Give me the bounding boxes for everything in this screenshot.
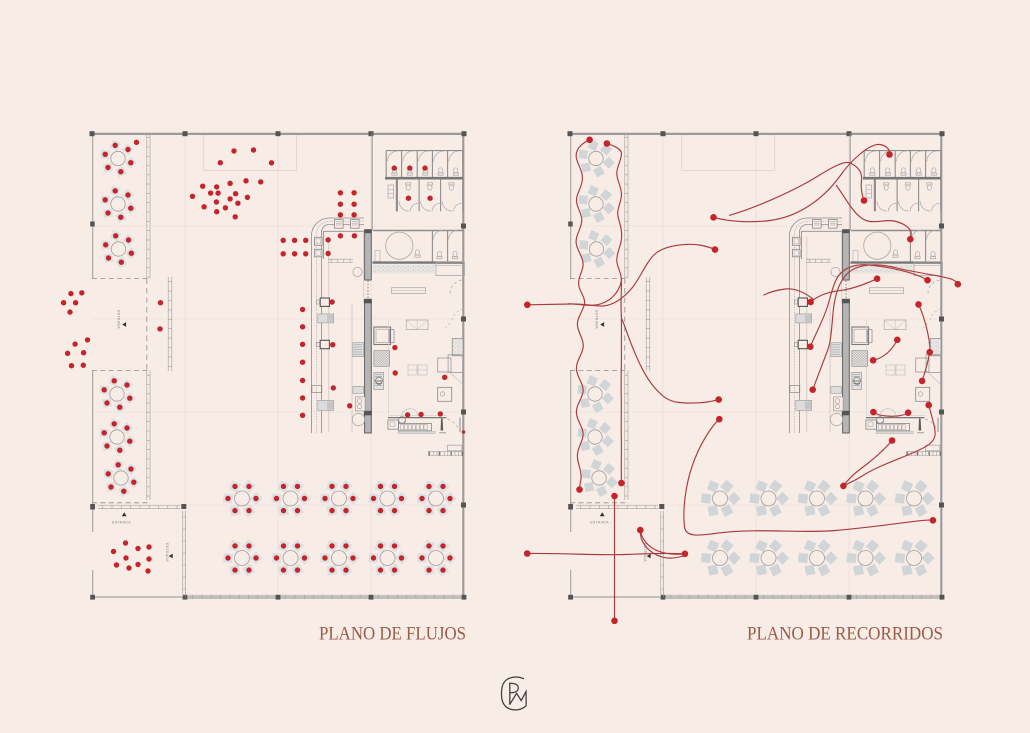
svg-text:PLANO DE RECORRIDOS: PLANO DE RECORRIDOS (747, 624, 943, 645)
svg-text:PLANO DE FLUJOS: PLANO DE FLUJOS (319, 624, 466, 645)
